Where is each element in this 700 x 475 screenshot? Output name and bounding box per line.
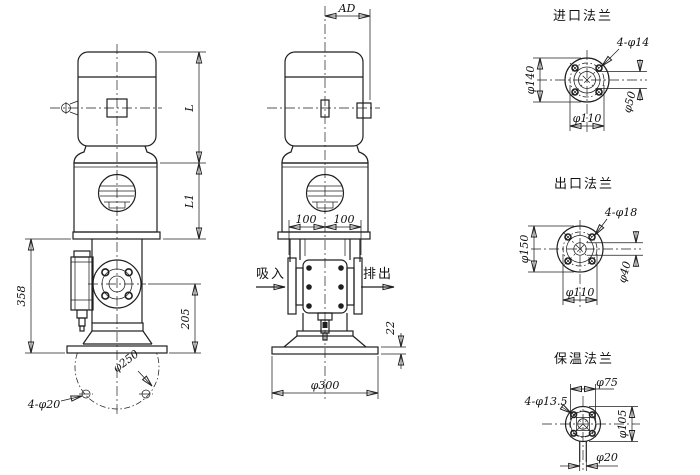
dim-phi250-label: φ250 xyxy=(111,347,142,375)
drawing-sheet: L L1 358 205 φ250 4-φ20 xyxy=(0,0,700,475)
suction-label: 吸入 xyxy=(256,267,286,282)
dim-4phi14-label: 4-φ14 xyxy=(616,36,649,49)
discharge-label: 排出 xyxy=(363,267,393,282)
dim-358-label: 358 xyxy=(15,286,28,307)
dim-phi20-label: φ20 xyxy=(596,451,618,464)
outlet-flange-title: 出口法兰 xyxy=(554,177,614,192)
dim-phi150-label: φ150 xyxy=(518,235,531,264)
pump-engineering-drawing: L L1 358 205 φ250 4-φ20 xyxy=(0,0,700,475)
dim-phi40-label: φ40 xyxy=(616,260,634,284)
side-terminal-box xyxy=(357,103,371,118)
side-view: AD xyxy=(256,2,406,400)
dim-phi140-label: φ140 xyxy=(524,66,537,95)
insulation-flange-detail: 保温法兰 φ75 4-φ13.5 φ105 xyxy=(524,352,640,471)
dim-205-label: 205 xyxy=(179,309,192,331)
insulation-flange-dimensions: φ75 4-φ13.5 φ105 φ20 xyxy=(524,376,638,471)
dim-phi300-label: φ300 xyxy=(311,379,340,392)
front-lantern xyxy=(73,146,160,239)
dim-AD-label: AD xyxy=(338,2,356,15)
outlet-flange-detail: 出口法兰 4-φ18 φ150 φ40 φ110 xyxy=(518,177,643,307)
dim-100-right-label: 100 xyxy=(334,213,355,226)
front-view: L L1 358 205 φ250 4-φ20 xyxy=(15,44,206,414)
front-mounting-plate xyxy=(73,232,160,239)
suction-flange xyxy=(288,258,296,314)
dim-phi75-label: φ75 xyxy=(596,376,618,389)
dim-22-label: 22 xyxy=(384,321,397,336)
dim-4phi13-label: 4-φ13.5 xyxy=(524,395,568,408)
dim-phi105-label: φ105 xyxy=(616,410,629,439)
front-safety-valve xyxy=(71,251,93,331)
side-lantern xyxy=(278,146,370,239)
inlet-flange-detail: 进口法兰 4-φ14 φ140 φ50 φ110 xyxy=(524,9,649,133)
dim-100-left-label: 100 xyxy=(296,213,317,226)
dim-outlet-phi110-label: φ110 xyxy=(566,286,595,299)
side-mounting-plate xyxy=(278,232,370,239)
dim-L1-label: L1 xyxy=(183,194,196,209)
discharge-flange xyxy=(354,258,362,314)
side-motor xyxy=(285,52,371,146)
dim-phi50-label: φ50 xyxy=(621,90,639,114)
dim-L-label: L xyxy=(183,104,196,112)
inlet-flange-dimensions: 4-φ14 φ140 φ50 φ110 xyxy=(524,36,649,131)
front-motor xyxy=(62,52,157,146)
insulation-flange-title: 保温法兰 xyxy=(554,352,614,367)
dim-4phi20-label: 4-φ20 xyxy=(27,398,60,411)
dim-inlet-phi110-label: φ110 xyxy=(573,112,602,125)
inlet-flange-title: 进口法兰 xyxy=(553,9,613,24)
dim-4phi18-label: 4-φ18 xyxy=(604,206,637,219)
